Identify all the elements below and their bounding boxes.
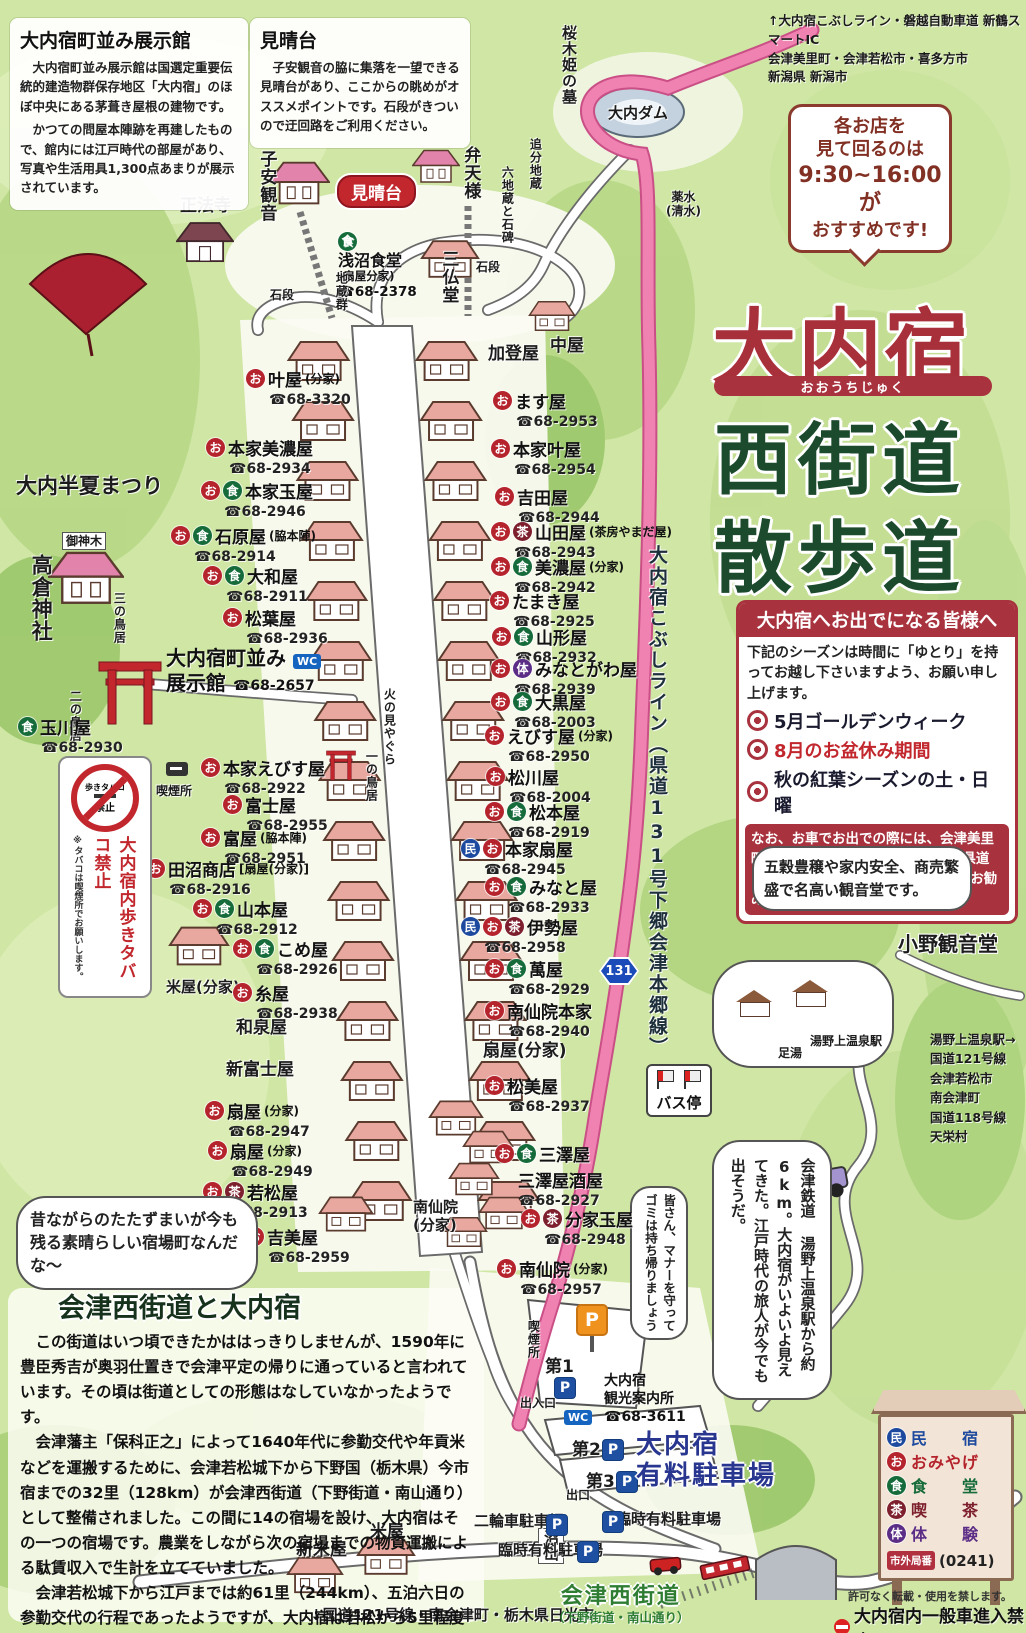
shop-name-sub: (分家): [264, 1102, 299, 1119]
shop-row: お富屋(脇本陣): [201, 825, 307, 850]
shop-name: みなと屋: [529, 874, 597, 899]
shop-entry: 民お本家扇屋☎68-2945: [461, 836, 573, 878]
map-label: 石段: [476, 260, 500, 274]
parking-p-icon: P: [577, 1541, 599, 1563]
shop-name: 伊勢屋: [527, 914, 578, 939]
area-code-number: (0241): [939, 1552, 994, 1570]
map-label: 新富士屋: [226, 1060, 294, 1080]
category-icon-お: お: [495, 1144, 514, 1163]
map-label: 大内半夏まつり: [16, 474, 163, 499]
category-icon-お: お: [208, 1141, 227, 1160]
category-icon-食: 食: [513, 692, 532, 711]
top-route-note: ↑大内宿こぶしライン・磐越自動車道 新鶴スマートIC 会津美里町・会津若松市・喜…: [768, 12, 1026, 87]
category-icon-お: お: [486, 767, 505, 786]
map-label: 第1: [545, 1357, 574, 1377]
shop-row: お糸屋: [233, 980, 338, 1005]
category-icon-お: お: [201, 758, 220, 777]
shop-name: 美濃屋: [535, 554, 586, 579]
shop-row: お食みなと屋: [485, 874, 597, 899]
shop-entry: お松美屋☎68-2937: [485, 1073, 590, 1115]
shop-name: えびす屋: [507, 723, 575, 748]
shop-phone: ☎68-2934: [229, 461, 313, 477]
legend-mark-体: 体: [887, 1524, 906, 1543]
shop-name: 萬屋: [529, 956, 563, 981]
shop-name-sub: (分家): [573, 1260, 608, 1277]
miharashidai-badge: 見晴台: [337, 175, 416, 208]
shop-name: 吉田屋: [517, 484, 568, 509]
shop-name-sub: (分家): [589, 558, 624, 575]
map-title-sub2: 散歩道: [714, 496, 966, 608]
tourist-info-line1: 大内宿: [604, 1372, 686, 1390]
onsen-bubble: [712, 960, 894, 1068]
category-icon-お: お: [485, 877, 504, 896]
notice-header: 大内宿へお出でになる皆様へ: [739, 603, 1015, 637]
shop-row: 食玉川屋: [18, 714, 123, 739]
shop-row: お南仙院(分家): [497, 1256, 608, 1281]
map-label: 火の見やぐら: [382, 688, 396, 766]
tenjikan-info-box: 大内宿町並み展示館 大内宿町並み展示館は国選定重要伝統的建造物群保存地区「大内宿…: [10, 18, 248, 210]
hours-bubble: 各お店を 見て回るのは 9:30~16:00が おすすめです!: [788, 104, 952, 253]
category-icon-お: お: [223, 608, 242, 627]
shop-phone: ☎68-2937: [508, 1099, 590, 1115]
shop-phone: ☎68-2954: [514, 462, 596, 478]
category-icon-民: 民: [461, 917, 480, 936]
history-para2: 会津藩主「保科正之」によって1640年代に参勤交代や年貢米などを運搬するために、…: [20, 1430, 472, 1581]
shop-row: おえびす屋(分家): [485, 723, 613, 748]
notice-item-text: 8月のお盆休み期間: [774, 737, 931, 763]
legend-mark-お: お: [887, 1452, 906, 1471]
map-label: 小野観音堂: [898, 932, 998, 956]
parking-entrance-sign: P: [576, 1304, 608, 1352]
aizu-kaido-main: 会津西街道: [552, 1584, 690, 1610]
shop-row: お食本家玉屋: [201, 478, 313, 503]
asanuma-sub: (扇屋分家): [338, 270, 417, 284]
shop-phone: ☎68-2926: [256, 962, 338, 978]
shop-row: おます屋: [493, 388, 598, 413]
no-entry-icon: [834, 1619, 850, 1633]
shop-name: 分家玉屋: [565, 1206, 633, 1231]
shop-name: 松美屋: [507, 1073, 558, 1098]
category-icon-食: 食: [507, 802, 526, 821]
category-icon-お: お: [491, 439, 510, 458]
map-label: 大内ダム: [608, 104, 668, 122]
no-smoking-icon: 歩きタバコ 禁止: [71, 764, 139, 832]
shop-row: お扇屋(分家): [208, 1138, 313, 1163]
legend-item: 食食 堂: [887, 1473, 1005, 1497]
shop-row: お食大黒屋: [491, 689, 596, 714]
shop-row: お本家えびす屋: [201, 755, 325, 780]
category-icon-お: お: [485, 802, 504, 821]
no-smoking-banner: 歩きタバコ 禁止 大内宿内歩きタバコ禁止 ※タバコは喫煙所でお願いします。: [58, 756, 152, 998]
shop-row: おたまき屋: [490, 588, 595, 613]
smoking-area-icon: [166, 762, 188, 776]
shop-entry: お食みなと屋☎68-2933: [485, 874, 597, 916]
bus-stop-label: バス停: [656, 1092, 701, 1113]
notice-bullet: [747, 739, 768, 760]
shop-name-sub: (脇本陣): [269, 527, 316, 544]
route-line: 新潟県 新潟市: [768, 68, 1026, 87]
exhibition-hall-tel: ☎68-2657: [233, 678, 315, 694]
shop-name: みなとがわ屋: [535, 656, 637, 681]
shop-row: お茶分家玉屋: [521, 1206, 633, 1231]
parking-p-icon: P: [554, 1377, 576, 1399]
hours-line: 各お店を: [795, 115, 945, 138]
shop-row: お食大和屋: [203, 563, 308, 588]
shop-phone: ☎68-2957: [520, 1282, 608, 1298]
legend-item: 民民 宿: [887, 1425, 1005, 1449]
no-smoking-main-text: 大内宿内歩きタバコ禁止: [89, 836, 139, 986]
shop-name: 本家扇屋: [505, 836, 573, 861]
map-label: 喫煙所: [526, 1320, 540, 1359]
cigarette-icon: [94, 794, 116, 798]
shop-row: お扇屋(分家): [205, 1098, 310, 1123]
parking-sign-p: P: [576, 1304, 608, 1336]
shop-entry: お本家美濃屋☎68-2934: [206, 435, 313, 477]
shop-entry: お南仙院(分家)☎68-2957: [497, 1256, 608, 1298]
category-icon-お: お: [206, 438, 225, 457]
shop-row: お食松本屋: [485, 799, 590, 824]
shop-row: お茶山田屋(茶房やまだ屋): [491, 519, 672, 544]
notice-items: 5月ゴールデンウィーク8月のお盆休み期間秋の紅葉シーズンの土・日曜: [739, 708, 1015, 818]
aizu-nishi-kaido-label: 会津西街道 （下野街道・南山通り）: [552, 1584, 690, 1625]
category-icon-食: 食: [225, 566, 244, 585]
shop-entry: お田沼商店[扇屋(分家)]☎68-2916: [146, 856, 309, 898]
category-icon-食: 食: [18, 717, 37, 736]
shop-row: お食山形屋: [492, 624, 597, 649]
station-directions: 湯野上温泉駅→国道121号線会津若松市南会津町国道118号線天栄村: [930, 1030, 1015, 1146]
shop-name: 扇屋: [227, 1098, 261, 1123]
shop-entry: お本家叶屋☎68-2954: [491, 436, 596, 478]
bridge: [756, 1546, 836, 1600]
shop-phone: ☎68-2929: [508, 982, 590, 998]
hours-line: おすすめです!: [795, 219, 945, 242]
legend-label: 食 堂: [911, 1473, 979, 1497]
kobushi-line-label: 大内宿こぶしライン（県道131号下郷会津本郷線）: [644, 545, 671, 1058]
category-icon-お: お: [201, 828, 220, 847]
shop-entry: お食三澤屋三澤屋酒屋☎68-2927: [495, 1141, 603, 1209]
category-icon-食: 食: [513, 557, 532, 576]
category-icon-お: お: [193, 899, 212, 918]
tourist-info-tel: ☎68-3611: [604, 1408, 686, 1426]
nostalgia-bubble: 昔ながらのたたずまいが今も残る素晴らしい宿場町なんだな〜: [16, 1196, 258, 1290]
shop-name-sub: (脇本陣): [260, 829, 307, 846]
manner-bubble: 皆さん、マナーを守ってゴミは持ち帰りましょう: [630, 1186, 688, 1340]
drive-bubble-text: 会津鉄道 湯野上温泉駅から約6km。大内宿がいよいよ見えてきた。江戸時代の旅人が…: [726, 1158, 819, 1383]
tenjikan-para1: 大内宿町並み展示館は国選定重要伝統的建造物群保存地区「大内宿」のほぼ中央にある茅…: [20, 58, 238, 116]
shop-name-sub: (分家): [305, 370, 340, 387]
map-label: 足湯: [778, 1046, 802, 1060]
map-label: 桜木姫の墓: [560, 25, 578, 105]
tenjikan-para2: かつての問屋本陣跡を再建したもので、館内には江戸時代の部屋があり、写真や生活用具…: [20, 120, 238, 198]
shop-name: 若松屋: [247, 1179, 298, 1204]
map-label: 三の鳥居: [112, 592, 126, 644]
legend-label: おみやげ: [911, 1449, 979, 1473]
shop-name: 石原屋: [215, 523, 266, 548]
station-direction-line: 天栄村: [930, 1127, 1015, 1146]
shop-row: お南仙院本家: [485, 998, 592, 1023]
shop-row: 民お本家扇屋: [461, 836, 573, 861]
shop-phone: ☎68-2950: [508, 749, 613, 765]
miharashidai-para: 子安観音の脇に集落を一望できる見晴台があり、ここからの眺めがオススメポイントです…: [260, 58, 460, 136]
shop-name: 大黒屋: [535, 689, 586, 714]
shop-entry: おます屋☎68-2953: [493, 388, 598, 430]
parking-p-icon: P: [616, 1471, 638, 1493]
tourist-info-line2: 観光案内所: [604, 1390, 686, 1408]
category-icon-お: お: [483, 839, 502, 858]
kannondo-bubble: 五穀豊穣や家内安全、商売繁盛で名高い観音堂です。: [752, 846, 972, 911]
map-label: 一の鳥居: [364, 750, 378, 802]
paid-parking-label: 大内宿 有料駐車場: [636, 1430, 776, 1492]
shop-entry: お本家えびす屋☎68-2922: [201, 755, 325, 797]
exhibition-hall-line2: 展示館: [166, 671, 226, 695]
shop-row: 民お茶伊勢屋: [461, 914, 578, 939]
category-icon-食: 食: [514, 627, 533, 646]
legend-mark-茶: 茶: [887, 1500, 906, 1519]
shop-name: 糸屋: [255, 980, 289, 1005]
category-icon-お: お: [233, 983, 252, 1002]
notice-item: 秋の紅葉シーズンの土・日曜: [747, 766, 1007, 818]
category-icon-お: お: [205, 1101, 224, 1120]
category-icon-食: 食: [223, 481, 242, 500]
category-icon-お: お: [497, 1259, 516, 1278]
shop-entry: お叶屋(分家)☎68-3320: [246, 366, 351, 408]
legend-sign: 民民 宿おおみやげ食食 堂茶喫 茶体体 験 市外局番 (0241): [878, 1384, 1014, 1581]
shop-entry: お食大和屋☎68-2911: [203, 563, 308, 605]
notice-item-text: 秋の紅葉シーズンの土・日曜: [774, 766, 1007, 818]
hours-line: 見て回るのは: [795, 138, 945, 161]
shop-entry: お食松本屋☎68-2919: [485, 799, 590, 841]
shop-name: 富士屋: [245, 792, 296, 817]
notice-item-text: 5月ゴールデンウィーク: [774, 708, 967, 734]
category-icon-お: お: [483, 917, 502, 936]
map-label: 喫煙所: [156, 784, 192, 798]
shop-row: お体みなとがわ屋: [491, 656, 637, 681]
exhibition-hall-label: 大内宿町並み WC 展示館 ☎68-2657: [166, 646, 321, 696]
map-label: 中屋: [550, 336, 584, 356]
asanuma-name: 浅沼食堂: [338, 251, 417, 270]
category-icon-お: お: [492, 627, 511, 646]
map-label: 追分地蔵: [528, 138, 542, 190]
parking-p-icon: P: [602, 1511, 624, 1533]
station-house-icon: [792, 980, 828, 1006]
map-title-furigana: おおうちじゅく: [714, 376, 992, 396]
notice-item: 8月のお盆休み期間: [747, 737, 1007, 763]
history-text: この街道はいつ頃できたかははっきりしませんが、1590年に豊臣秀吉が奥羽仕置きで…: [20, 1330, 472, 1633]
map-label: 米屋(分家): [166, 978, 240, 996]
shop-entry: お食本家玉屋☎68-2946: [201, 478, 313, 520]
shop-name: こめ屋: [277, 936, 328, 961]
category-icon-お: お: [485, 726, 504, 745]
category-icon-茶: 茶: [543, 1209, 562, 1228]
station-direction-line: 南会津町: [930, 1088, 1015, 1107]
shop-row: お食萬屋: [485, 956, 590, 981]
route-line: ↑大内宿こぶしライン・磐越自動車道 新鶴スマートIC: [768, 12, 1026, 50]
station-direction-line: 国道118号線: [930, 1108, 1015, 1127]
category-icon-茶: 茶: [505, 917, 524, 936]
shop-phone: ☎68-2948: [544, 1232, 633, 1248]
legend-roof: [871, 1384, 1026, 1414]
shop-row: お松美屋: [485, 1073, 590, 1098]
category-icon-体: 体: [513, 659, 532, 678]
asanuma-shokudo-label: 食 浅沼食堂 (扇屋分家) ☎68-2378: [338, 232, 417, 300]
category-icon-民: 民: [461, 839, 480, 858]
map-title-sub1: 西街道: [714, 398, 966, 510]
shop-phone: ☎68-2959: [268, 1250, 350, 1266]
history-title: 会津西街道と大内宿: [58, 1286, 301, 1325]
shop-row: お本家美濃屋: [206, 435, 313, 460]
legend-mark-民: 民: [887, 1428, 906, 1447]
shop-name: 山形屋: [536, 624, 587, 649]
category-icon-お: お: [491, 692, 510, 711]
shop-row: お松川屋: [486, 764, 591, 789]
category-icon-食: 食: [517, 1144, 536, 1163]
wc-icon: WC: [293, 654, 321, 669]
no-smoking-note: ※タバコは喫煙所でお願いします。: [72, 836, 85, 986]
shop-name: 叶屋: [268, 366, 302, 391]
shop-entry: お松葉屋☎68-2936: [223, 605, 328, 647]
notice-bullet: [747, 781, 768, 802]
shop-phone: ☎68-2946: [224, 504, 313, 520]
shop-name2: 三澤屋酒屋: [518, 1167, 603, 1192]
shop-phone: ☎68-2958: [484, 940, 578, 956]
shop-phone: ☎68-2940: [508, 1024, 592, 1040]
shop-phone: ☎68-3320: [269, 392, 351, 408]
map-label: 高倉神社: [28, 554, 53, 642]
shop-row: お食三澤屋: [495, 1141, 603, 1166]
category-icon-お: お: [493, 391, 512, 410]
no-smoking-circle-bottom: 禁止: [95, 799, 115, 814]
map-label: 湯野上温泉駅: [810, 1034, 882, 1048]
paid-parking-line2: 有料駐車場: [636, 1461, 776, 1492]
category-icon-お: お: [246, 369, 265, 388]
map-label: 御神木: [62, 532, 106, 550]
shop-entry: 民お茶伊勢屋☎68-2958: [461, 914, 578, 956]
shop-name: 吉美屋: [267, 1224, 318, 1249]
category-icon-お: お: [201, 481, 220, 500]
legend-item: 体体 験: [887, 1521, 1005, 1545]
notice-intro: 下記のシーズンは時間に「ゆとり」を持ってお越し下さいますよう、お願い申し上げます…: [747, 643, 1007, 704]
category-icon-お: お: [233, 939, 252, 958]
shop-name: たまき屋: [512, 588, 580, 613]
shop-entry: おえびす屋(分家)☎68-2950: [485, 723, 613, 765]
shop-name-sub: (茶房やまだ屋): [589, 523, 672, 540]
aizu-kaido-sub: （下野街道・南山通り）: [552, 1610, 690, 1625]
traffic-signal-icon: [684, 1070, 701, 1082]
shop-name: 玉川屋: [40, 714, 91, 739]
shop-phone: ☎68-2949: [231, 1164, 313, 1180]
shop-name: 大和屋: [247, 563, 298, 588]
map-label: 臨時有料駐車場: [616, 1510, 721, 1528]
shop-row: お松葉屋: [223, 605, 328, 630]
shop-phone: ☎68-2930: [41, 740, 123, 756]
ouchijuku-map: 大内宿町並み展示館 大内宿町並み展示館は国選定重要伝統的建造物群保存地区「大内宿…: [0, 0, 1026, 1633]
category-icon-食: 食: [507, 877, 526, 896]
asanuma-tel: ☎68-2378: [338, 284, 417, 300]
shop-name: 扇屋: [230, 1138, 264, 1163]
shop-name: 山本屋: [237, 896, 288, 921]
shop-row: お吉美屋: [245, 1224, 350, 1249]
shop-entry: お扇屋(分家)☎68-2947: [205, 1098, 310, 1140]
shop-name: 山田屋: [535, 519, 586, 544]
category-icon-お: お: [521, 1209, 540, 1228]
shop-name: 松葉屋: [245, 605, 296, 630]
shop-name: 本家玉屋: [245, 478, 313, 503]
shop-name: 本家叶屋: [513, 436, 581, 461]
category-icon-食: 食: [255, 939, 274, 958]
no-entry-note: 大内宿内一般車進入禁止: [834, 1602, 1026, 1633]
area-code-badge: 市外局番: [887, 1551, 935, 1570]
category-icon-お: お: [495, 487, 514, 506]
shop-row: お富士屋: [223, 792, 328, 817]
category-icon-お: お: [171, 526, 190, 545]
miharashidai-title: 見晴台: [260, 26, 460, 53]
miharashidai-info-box: 見晴台 子安観音の脇に集落を一望できる見晴台があり、ここからの眺めがオススメポイ…: [250, 18, 470, 148]
shop-name: 松本屋: [529, 799, 580, 824]
history-para3: 会津若松城下から江戸までは約61里（244km）、五泊六日の参勤交代の行程であっ…: [20, 1581, 472, 1633]
shop-entry: お南仙院本家☎68-2940: [485, 998, 592, 1040]
map-label: 出入口: [520, 1396, 556, 1410]
shop-name: 三澤屋: [539, 1141, 590, 1166]
bus-stop-sign: バス停: [646, 1064, 712, 1117]
notice-item: 5月ゴールデンウィーク: [747, 708, 1007, 734]
category-icon-茶: 茶: [513, 522, 532, 541]
shop-phone: ☎68-2911: [226, 589, 308, 605]
category-icon-お: お: [223, 795, 242, 814]
shop-entry: お糸屋☎68-2938: [233, 980, 338, 1022]
route-131-number: 131: [601, 959, 637, 983]
parking-p-icon: P: [602, 1439, 624, 1461]
hours-line: 9:30~16:00が: [795, 162, 945, 219]
shop-name: 本家美濃屋: [228, 435, 313, 460]
map-label: 第3: [586, 1472, 615, 1492]
shop-name: ます屋: [515, 388, 566, 413]
parking-p-icon: P: [546, 1514, 568, 1536]
shop-row: お食山本屋: [193, 896, 298, 921]
category-icon-食: 食: [215, 899, 234, 918]
map-label: 弁天様: [460, 146, 480, 200]
map-label: 石段: [270, 288, 294, 302]
legend-label: 体 験: [911, 1521, 979, 1545]
map-label: 薬水 (清水): [666, 190, 701, 219]
category-icon-食: 食: [507, 959, 526, 978]
shop-phone: ☎68-2936: [246, 631, 328, 647]
wc-tag: WC: [564, 1410, 592, 1425]
legend-item: 茶喫 茶: [887, 1497, 1005, 1521]
map-label: 子安観音: [256, 150, 276, 222]
shokudo-icon: 食: [338, 232, 357, 251]
exhibition-hall-line1: 大内宿町並み: [166, 646, 286, 670]
shop-name: 南仙院本家: [507, 998, 592, 1023]
legend-label: 喫 茶: [911, 1497, 979, 1521]
map-label: 地蔵群: [334, 272, 348, 311]
category-icon-お: お: [485, 1001, 504, 1020]
category-icon-お: お: [491, 557, 510, 576]
station-direction-line: 国道121号線: [930, 1049, 1015, 1068]
shop-entry: お食萬屋☎68-2929: [485, 956, 590, 998]
paid-parking-line1: 大内宿: [636, 1430, 776, 1461]
tourist-info-label: 大内宿 観光案内所 ☎68-3611: [604, 1372, 686, 1427]
shop-entry: 食玉川屋☎68-2930: [18, 714, 123, 756]
legend-label: 民 宿: [911, 1425, 979, 1449]
map-label: 扇屋(分家): [483, 1041, 567, 1061]
legend-items: 民民 宿おおみやげ食食 堂茶喫 茶体体 験: [887, 1425, 1005, 1545]
category-icon-お: お: [485, 959, 504, 978]
category-icon-食: 食: [193, 526, 212, 545]
shop-entry: お食山本屋☎68-2912: [193, 896, 298, 938]
category-icon-お: お: [490, 591, 509, 610]
shop-entry: お食こめ屋☎68-2926: [233, 936, 338, 978]
shop-entry: お茶分家玉屋☎68-2948: [521, 1206, 633, 1248]
